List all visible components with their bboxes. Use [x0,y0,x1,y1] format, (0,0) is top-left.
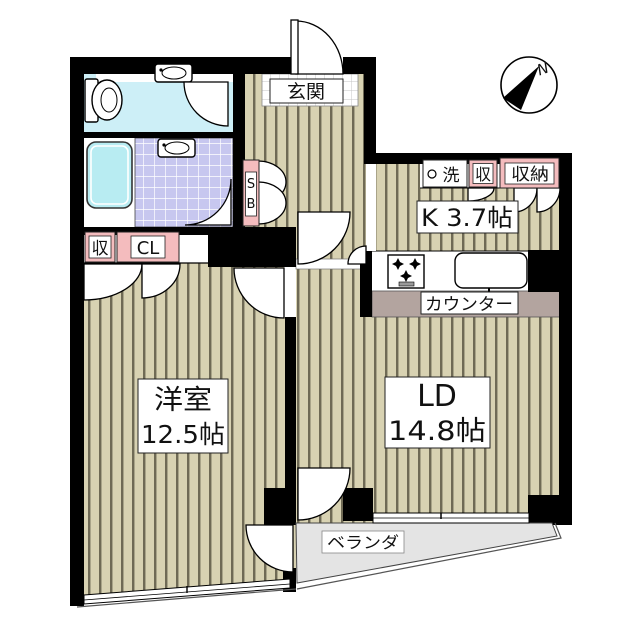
compass: N [501,57,557,113]
wall-toilet-bath-divider [82,132,233,138]
kitchen-storage-label: 収納 [500,158,559,188]
bathtub-icon [87,142,132,208]
kitchen-storage-small-label: 収 [469,160,497,187]
washer-label-text: 洗 [443,166,460,186]
counter-label-text: カウンター [425,295,513,315]
wall-chunk-counter-right [528,250,572,292]
wall-western-ld-divider [285,317,296,490]
toilet-icon [85,79,122,122]
bedroom-storage-label: 収 [85,232,115,262]
counter-label: カウンター [421,292,518,315]
ld-veranda-window [373,513,529,523]
bedroom-storage-text: 収 [92,239,109,259]
wall-right [559,153,572,525]
kitchen-label-text: K 3.7帖 [421,204,513,232]
shoe-box-label-b: B [247,197,256,212]
shoe-box-label-s: S [247,177,255,192]
ld-label-line1: LD [417,379,457,414]
entrance-label: 玄関 [270,79,343,103]
wall-chunk-ld-bottom-left [343,488,373,521]
floor-plan-canvas: 玄関 K 3.7帖 カウンター LD 14.8帖 洋室 12.5帖 ベランダ S… [0,0,640,640]
wall-hall-kitchen-upper [364,62,376,157]
western-room-doorway-gap [284,267,296,317]
ld-label-line2: 14.8帖 [388,416,486,447]
shoe-box-label: S B [243,160,259,226]
western-room-label-line1: 洋室 [154,385,212,416]
wall-chunk-western-bottom [264,488,296,525]
vanity-sink-icon [155,64,192,82]
entrance-label-text: 玄関 [287,81,325,103]
kitchen-doorway-gap [366,187,376,251]
kitchen-storage-text: 収納 [511,165,549,185]
western-room-label: 洋室 12.5帖 [138,379,228,453]
bathroom-sink-icon [158,139,195,157]
shoe-box-doors [258,161,286,224]
western-room-label-line2: 12.5帖 [141,420,225,449]
stove-icon [388,255,424,288]
entrance-door-swing [291,20,343,74]
living-dining-label: LD 14.8帖 [385,377,490,448]
wall-chunk-hall-center [208,227,296,267]
wall-chunk-ld-bottom-right [528,495,572,525]
kitchen-label: K 3.7帖 [417,201,518,233]
veranda-label: ベランダ [322,531,404,553]
closet-label: CL [117,232,179,262]
closet-label-text: CL [137,238,160,259]
floor-plan-page: 玄関 K 3.7帖 カウンター LD 14.8帖 洋室 12.5帖 ベランダ S… [0,0,640,640]
wall-left [70,57,84,606]
kitchen-storage-small-text: 収 [475,165,491,184]
veranda-label-text: ベランダ [327,533,399,552]
washer-label: 洗 [423,160,467,187]
